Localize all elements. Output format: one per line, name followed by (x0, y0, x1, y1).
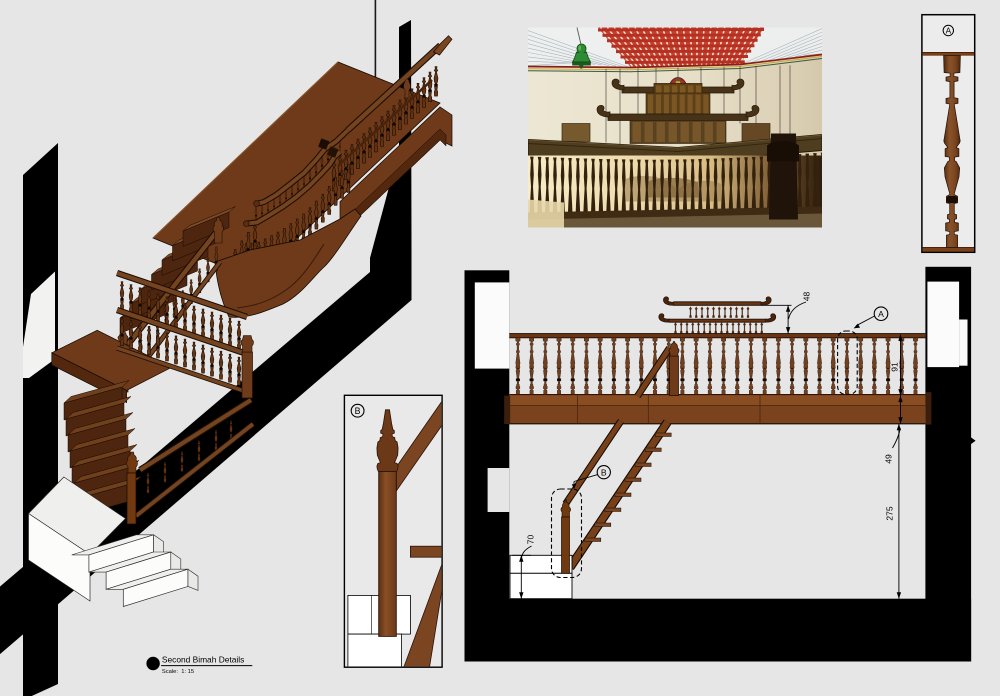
svg-text:Second Bimah Details: Second Bimah Details (162, 654, 244, 664)
svg-text:Scale: 1: 15: Scale: 1: 15 (162, 669, 194, 675)
svg-text:B: B (355, 406, 361, 416)
svg-text:A: A (878, 309, 884, 319)
svg-text:91: 91 (889, 362, 899, 372)
svg-text:275: 275 (884, 506, 894, 520)
svg-text:A: A (946, 26, 952, 35)
svg-text:70: 70 (526, 535, 536, 545)
svg-text:49: 49 (883, 454, 893, 464)
svg-text:B: B (601, 468, 607, 478)
svg-text:48: 48 (802, 292, 812, 302)
